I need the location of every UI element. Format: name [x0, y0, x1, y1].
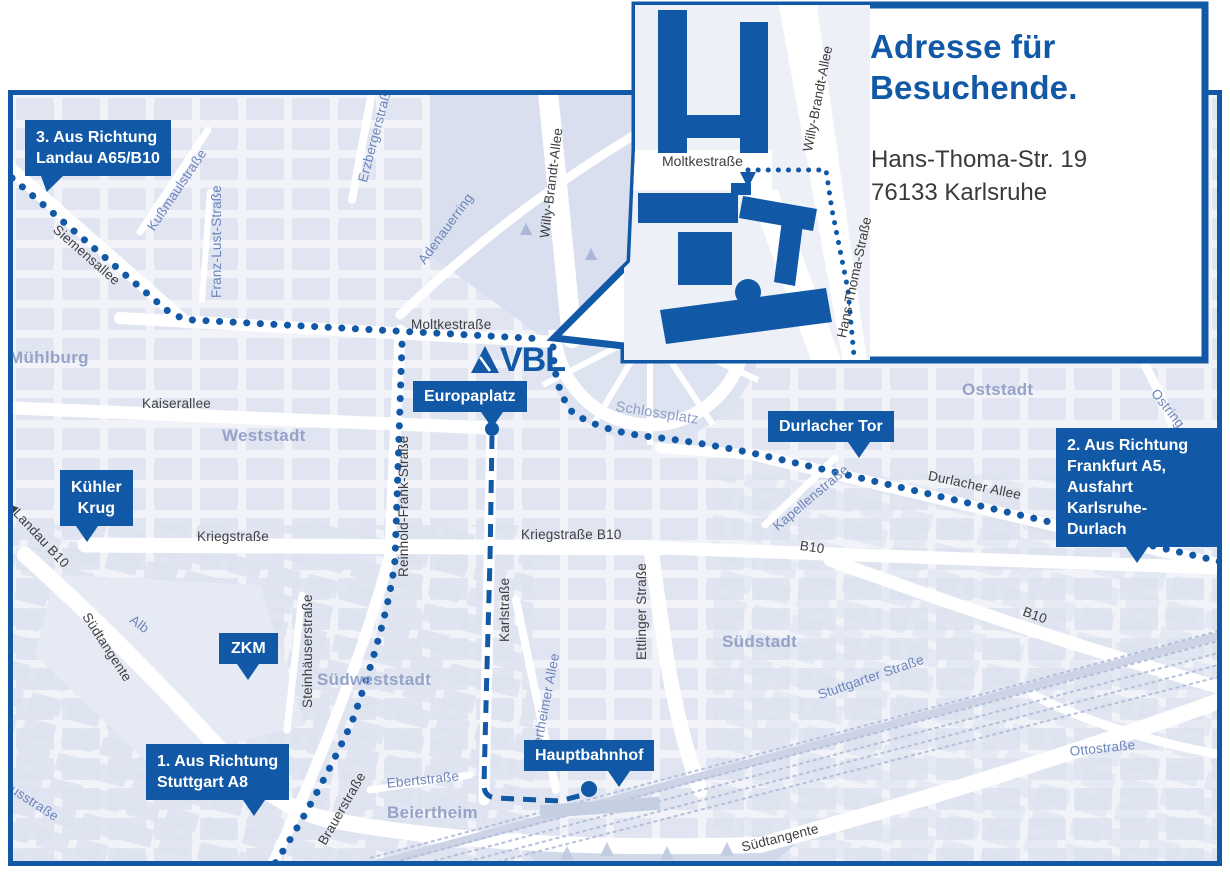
street-label-ettlinger-strasse: Ettlinger Straße — [634, 563, 649, 660]
inset-street-label-moltkestrasse: Moltkestraße — [662, 153, 743, 169]
route-map-infographic: Siemensallee Moltkestraße Kaiserallee Kr… — [0, 0, 1230, 874]
badge-durlacher-tor: Durlacher Tor — [768, 411, 894, 442]
district-label-beiertheim: Beiertheim — [387, 803, 478, 823]
district-label-muehlburg: Mühlburg — [9, 348, 89, 368]
street-label-b10-east: B10 — [799, 538, 825, 556]
inset-title: Adresse für Besuchende. — [870, 26, 1078, 108]
street-label-kriegstrasse-b10: Kriegstraße B10 — [521, 527, 622, 542]
street-label-kriegstrasse: Kriegstraße — [197, 529, 269, 544]
hauptbahnhof-location-dot — [581, 781, 597, 797]
badge-direction-landau: 3. Aus Richtung Landau A65/B10 — [25, 120, 171, 176]
badge-europaplatz: Europaplatz — [413, 381, 527, 412]
badge-direction-frankfurt: 2. Aus Richtung Frankfurt A5, Ausfahrt K… — [1056, 428, 1217, 547]
badge-direction-stuttgart: 1. Aus Richtung Stuttgart A8 — [146, 744, 289, 800]
vbl-logo: VBL — [470, 345, 565, 375]
street-label-kaiserallee: Kaiserallee — [142, 396, 211, 411]
street-label-moltkestrasse: Moltkestraße — [411, 317, 491, 332]
district-label-weststadt: Weststadt — [222, 426, 306, 446]
inset-address: Hans-Thoma-Str. 19 76133 Karlsruhe — [871, 143, 1087, 209]
castle-building — [613, 300, 677, 314]
district-label-oststadt: Oststadt — [962, 380, 1033, 400]
badge-kuehler-krug: Kühler Krug — [60, 470, 133, 526]
badge-zkm: ZKM — [219, 633, 278, 664]
vbl-logo-triangle-icon — [470, 345, 500, 375]
vbl-logo-text: VBL — [500, 345, 565, 375]
district-label-suedweststadt: Südweststadt — [317, 670, 431, 690]
street-label-steinhaeuserstrasse: Steinhäuserstraße — [300, 594, 315, 708]
street-label-franz-lust-strasse: Franz-Lust-Straße — [209, 185, 224, 298]
street-label-karlstrasse: Karlstraße — [497, 578, 512, 642]
street-label-reinhold-frank-strasse: Reinhold-Frank-Straße — [396, 435, 411, 577]
district-label-suedstadt: Südstadt — [722, 632, 797, 652]
badge-hauptbahnhof: Hauptbahnhof — [524, 740, 654, 771]
